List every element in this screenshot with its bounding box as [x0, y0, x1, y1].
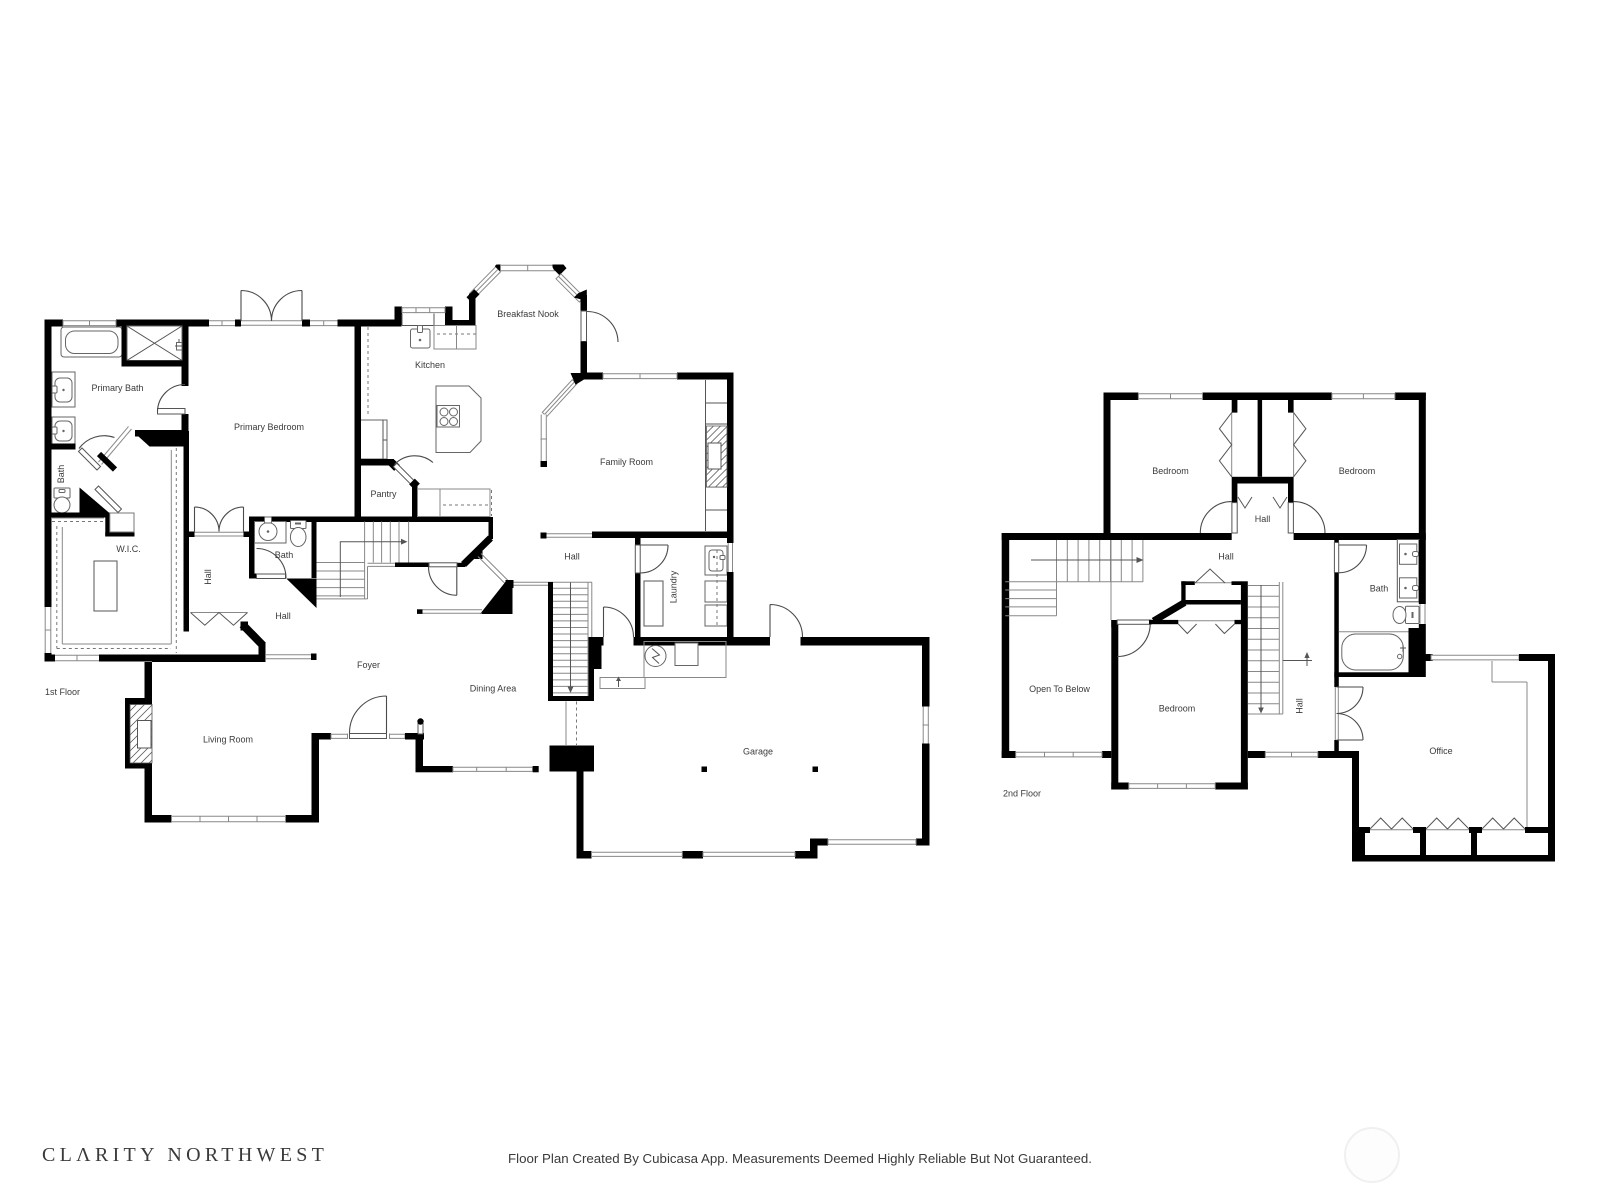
svg-text:Pantry: Pantry: [370, 489, 397, 499]
svg-text:Breakfast Nook: Breakfast Nook: [497, 309, 559, 319]
svg-text:Family Room: Family Room: [600, 457, 653, 467]
svg-text:Dining Area: Dining Area: [470, 684, 517, 694]
svg-text:Hall: Hall: [1255, 514, 1271, 524]
svg-text:Garage: Garage: [743, 747, 773, 757]
svg-text:Bedroom: Bedroom: [1159, 704, 1196, 714]
svg-text:Open To Below: Open To Below: [1029, 684, 1090, 694]
svg-text:Bath: Bath: [56, 465, 66, 484]
svg-text:Bedroom: Bedroom: [1152, 466, 1189, 476]
svg-text:Primary Bedroom: Primary Bedroom: [234, 422, 304, 432]
svg-text:2nd Floor: 2nd Floor: [1003, 789, 1041, 799]
svg-text:Hall: Hall: [275, 611, 291, 621]
svg-text:Office: Office: [1429, 746, 1452, 756]
svg-text:Hall: Hall: [203, 569, 213, 585]
svg-text:Laundry: Laundry: [669, 570, 679, 603]
svg-text:Kitchen: Kitchen: [415, 360, 445, 370]
svg-text:Bedroom: Bedroom: [1339, 466, 1376, 476]
svg-text:Living Room: Living Room: [203, 735, 253, 745]
svg-text:1st Floor: 1st Floor: [45, 687, 80, 697]
svg-text:Hall: Hall: [564, 552, 580, 562]
svg-text:CLΛRITY NORTHWEST: CLΛRITY NORTHWEST: [42, 1144, 328, 1166]
svg-text:Foyer: Foyer: [357, 660, 380, 670]
svg-text:Hall: Hall: [1295, 698, 1305, 714]
svg-text:Floor Plan Created By Cubicasa: Floor Plan Created By Cubicasa App. Meas…: [508, 1151, 1092, 1166]
svg-text:Hall: Hall: [1218, 552, 1234, 562]
svg-text:Bath: Bath: [1370, 584, 1389, 594]
svg-text:W.I.C.: W.I.C.: [116, 544, 141, 554]
svg-text:Primary Bath: Primary Bath: [91, 383, 143, 393]
svg-text:Bath: Bath: [275, 550, 294, 560]
